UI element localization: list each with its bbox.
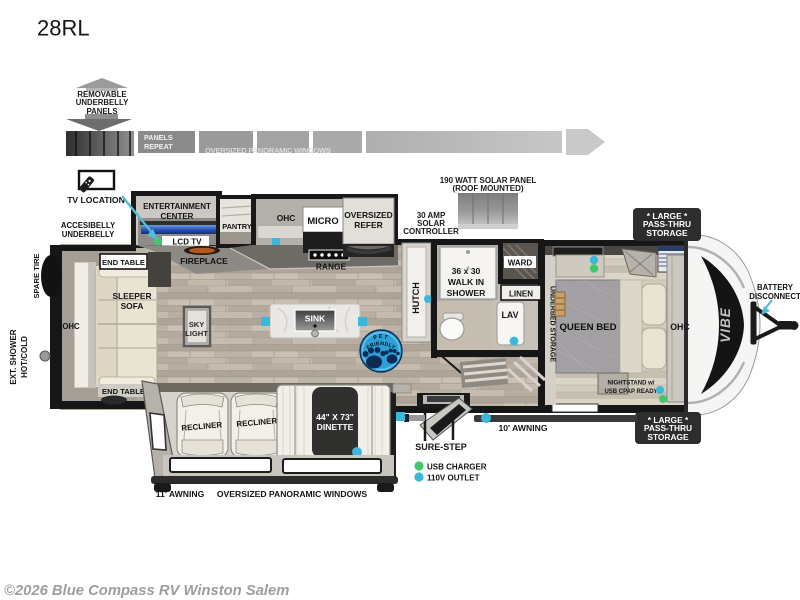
svg-text:STORAGE: STORAGE <box>647 432 689 442</box>
svg-text:CENTER: CENTER <box>161 212 194 221</box>
svg-text:FIREPLACE: FIREPLACE <box>180 256 228 266</box>
svg-text:SOFA: SOFA <box>121 301 144 311</box>
svg-text:RANGE: RANGE <box>316 262 347 272</box>
svg-text:SLEEPER: SLEEPER <box>112 291 151 301</box>
svg-text:110V OUTLET: 110V OUTLET <box>427 474 480 483</box>
svg-text:OVERSIZED: OVERSIZED <box>344 210 392 220</box>
svg-text:SURE-STEP: SURE-STEP <box>415 442 467 452</box>
svg-text:WARD: WARD <box>508 259 533 268</box>
svg-text:ACCESIBELLY: ACCESIBELLY <box>61 221 116 230</box>
svg-text:©2026 Blue Compass RV Winston: ©2026 Blue Compass RV Winston Salem <box>4 583 289 599</box>
svg-text:LCD TV: LCD TV <box>173 238 203 247</box>
svg-text:10' AWNING: 10' AWNING <box>499 423 548 433</box>
svg-text:DINETTE: DINETTE <box>317 422 354 432</box>
svg-text:SPARE TIRE: SPARE TIRE <box>32 253 41 298</box>
svg-text:OVERSIZED PANORAMIC WINDOWS: OVERSIZED PANORAMIC WINDOWS <box>205 146 331 155</box>
svg-text:WALK IN: WALK IN <box>448 277 484 287</box>
svg-text:MICRO: MICRO <box>307 215 338 226</box>
svg-text:44" X 73": 44" X 73" <box>316 412 354 422</box>
svg-text:UNDERBELLY: UNDERBELLY <box>76 98 129 107</box>
svg-text:(ROOF MOUNTED): (ROOF MOUNTED) <box>452 184 523 193</box>
svg-text:PANELS: PANELS <box>144 133 173 142</box>
svg-text:UNDERBED STORAGE: UNDERBED STORAGE <box>549 286 556 362</box>
svg-text:USB CHARGER: USB CHARGER <box>427 463 487 472</box>
svg-text:USB CPAP READY: USB CPAP READY <box>604 389 657 395</box>
svg-text:LIGHT: LIGHT <box>185 329 208 338</box>
svg-text:TV LOCATION: TV LOCATION <box>67 195 125 205</box>
svg-text:EXT. SHOWER: EXT. SHOWER <box>9 329 18 384</box>
svg-text:OVERSIZED PANORAMIC WINDOWS: OVERSIZED PANORAMIC WINDOWS <box>217 489 367 499</box>
svg-text:OHC: OHC <box>670 322 690 332</box>
svg-text:END TABLE: END TABLE <box>102 387 145 396</box>
svg-text:CONTROLLER: CONTROLLER <box>403 227 459 236</box>
svg-text:ENTERTAINMENT: ENTERTAINMENT <box>143 202 211 211</box>
svg-text:STORAGE: STORAGE <box>646 228 688 238</box>
svg-text:REFER: REFER <box>354 220 382 230</box>
svg-text:BATTERY: BATTERY <box>757 283 794 292</box>
svg-text:VIBE: VIBE <box>718 307 733 343</box>
svg-text:QUEEN BED: QUEEN BED <box>559 322 616 333</box>
svg-text:HUTCH: HUTCH <box>411 282 421 314</box>
svg-text:OHC: OHC <box>277 213 296 223</box>
svg-text:SHOWER: SHOWER <box>447 288 486 298</box>
svg-text:SKY: SKY <box>189 320 205 329</box>
svg-text:PANTRY: PANTRY <box>222 222 252 231</box>
svg-text:LAV: LAV <box>502 310 519 320</box>
svg-text:NIGHTSTAND w/: NIGHTSTAND w/ <box>608 381 655 387</box>
svg-text:OHC: OHC <box>62 322 80 331</box>
svg-text:28RL: 28RL <box>37 16 90 41</box>
svg-text:11' AWNING: 11' AWNING <box>156 489 205 499</box>
svg-text:HOT/COLD: HOT/COLD <box>20 336 29 378</box>
svg-text:SINK: SINK <box>305 314 326 324</box>
svg-text:DISCONNECT: DISCONNECT <box>749 292 800 301</box>
svg-text:UNDERBELLY: UNDERBELLY <box>62 230 115 239</box>
svg-text:36 x 30: 36 x 30 <box>452 266 481 276</box>
svg-text:LINEN: LINEN <box>509 290 533 299</box>
svg-text:REPEAT: REPEAT <box>144 142 173 151</box>
svg-text:END TABLE: END TABLE <box>102 258 145 267</box>
